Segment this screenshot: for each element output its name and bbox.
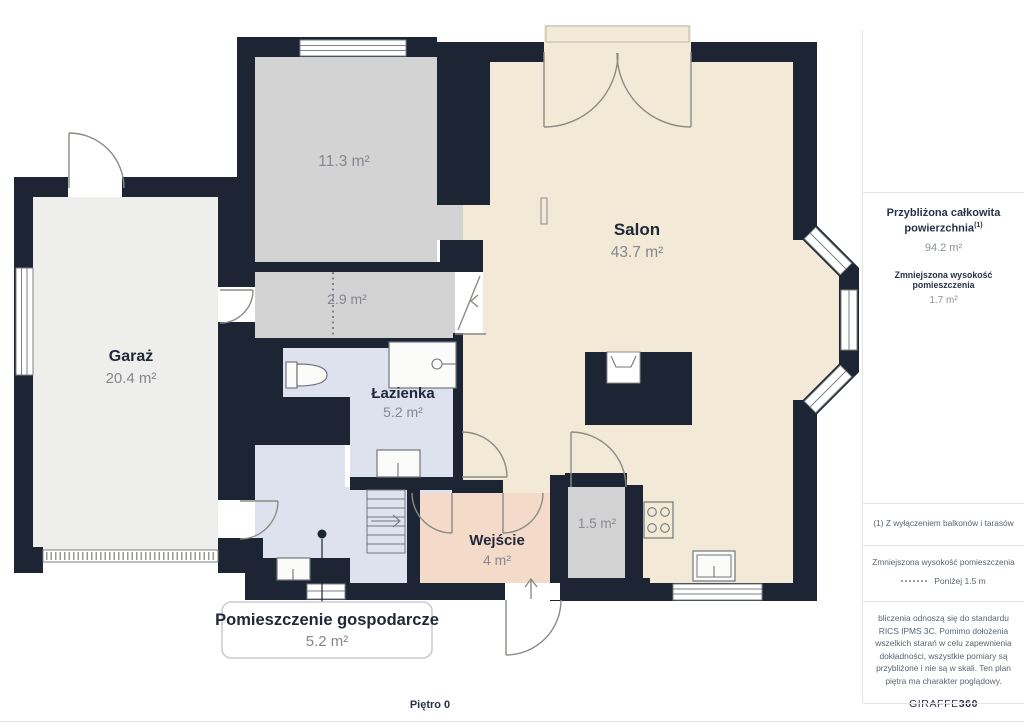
- legend-title: Zmniejszona wysokość pomieszczenia: [863, 557, 1024, 567]
- reduced-height-title: Zmniejszona wysokość pomieszczenia: [863, 270, 1024, 290]
- kitchen-sink-icon: [693, 551, 735, 581]
- living-room-name-label: Salon: [614, 220, 660, 239]
- info-sidebar: Przybliżona całkowita powierzchnia(1) 94…: [862, 30, 1024, 703]
- garage-exterior-door-opening: [68, 177, 122, 197]
- bathroom-sink-icon: [377, 450, 420, 477]
- entrance-exterior-door-opening: [505, 583, 560, 600]
- disclaimer-section: bliczenia odnoszą się do standardu RICS …: [863, 601, 1024, 712]
- bay-window-middle: [841, 290, 857, 350]
- window-bedroom-top: [300, 40, 406, 56]
- doorway-floor-right: [503, 477, 550, 493]
- closet-area-label: 1.5 m²: [578, 516, 617, 531]
- stairs: [367, 490, 405, 553]
- stove-icon: [644, 502, 673, 538]
- utility-leader-dot: [318, 530, 327, 539]
- room-closet-floor: [568, 487, 625, 580]
- garage-utility-door-opening: [218, 500, 255, 538]
- hall-area-label: 2.9 m²: [327, 291, 367, 307]
- shower-icon: [389, 342, 456, 388]
- total-area-value: 94.2 m²: [863, 242, 1024, 254]
- garage-name-label: Garaż: [109, 348, 153, 365]
- bedroom-salon-opening-floor: [437, 205, 463, 240]
- window-salon-bottom: [673, 584, 762, 600]
- bedroom-area-label: 11.3 m²: [318, 153, 369, 170]
- living-room-area-label: 43.7 m²: [611, 244, 664, 261]
- dotted-line-icon: [901, 580, 927, 582]
- total-area-superscript: (1): [974, 222, 983, 229]
- bathroom-area-label: 5.2 m²: [383, 404, 423, 420]
- sidebar-bottom-divider: [863, 703, 1024, 704]
- terrace-step: [546, 26, 689, 42]
- window-garage-left: [16, 268, 33, 375]
- entrance-name-label: Wejście: [469, 532, 525, 549]
- reduced-height-value: 1.7 m²: [863, 295, 1024, 306]
- total-area-title-text: Przybliżona całkowita powierzchnia: [887, 207, 1001, 235]
- garage-area-label: 20.4 m²: [106, 370, 157, 387]
- footnote-section: (1) Z wyłączeniem balkonów i tarasów: [863, 503, 1024, 542]
- total-area-title: Przybliżona całkowita powierzchnia(1): [863, 206, 1024, 236]
- floorplan-page: 11.3 m² Garaż 20.4 m² 2.9 m² Łazienka 5.…: [0, 0, 1024, 724]
- entrance-exterior-door: [506, 600, 561, 655]
- fireplace-icon: [585, 352, 692, 425]
- legend-section: Zmniejszona wysokość pomieszczenia Poniż…: [863, 545, 1024, 586]
- total-area-section: Przybliżona całkowita powierzchnia(1) 94…: [863, 192, 1024, 306]
- disclaimer-text: bliczenia odnoszą się do standardu RICS …: [870, 612, 1017, 688]
- floor-label: Piętro 0: [330, 699, 530, 711]
- garage-door-band: [43, 550, 218, 562]
- entrance-area-label: 4 m²: [483, 552, 511, 568]
- utility-name-label: Pomieszczenie gospodarcze: [215, 611, 439, 629]
- appliance-icon: [277, 558, 310, 580]
- giraffe360-logo: GIRAFFE360: [870, 697, 1017, 713]
- legend-value: Poniżej 1.5 m: [934, 576, 986, 586]
- page-bottom-divider: [0, 721, 1024, 722]
- utility-area-label: 5.2 m²: [306, 633, 349, 650]
- window-utility-bottom: [307, 584, 345, 599]
- bathroom-name-label: Łazienka: [371, 385, 435, 402]
